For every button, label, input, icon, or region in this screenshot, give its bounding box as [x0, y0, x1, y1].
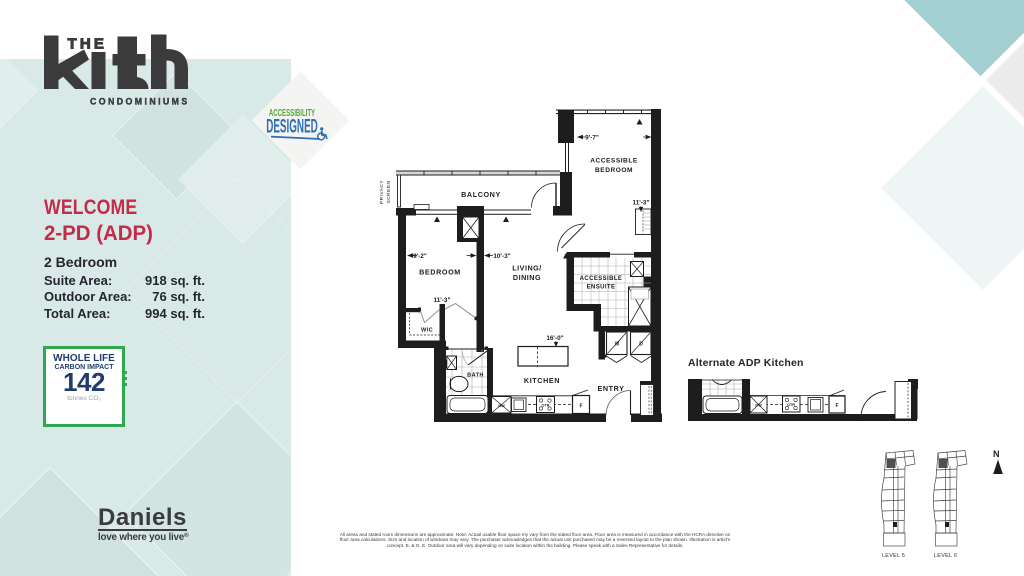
svg-text:ENSUITE: ENSUITE [587, 285, 616, 291]
svg-text:9'-2": 9'-2" [413, 253, 427, 260]
svg-text:PRIVACY: PRIVACY [379, 180, 385, 205]
svg-text:9'-7": 9'-7" [585, 135, 599, 142]
svg-text:BATH: BATH [467, 373, 484, 379]
svg-text:LEVEL 6: LEVEL 6 [934, 553, 957, 559]
svg-text:KITCHEN: KITCHEN [524, 376, 560, 385]
svg-text:N: N [993, 449, 1000, 459]
svg-text:LEVEL 5: LEVEL 5 [882, 553, 905, 559]
svg-text:11'-3": 11'-3" [633, 200, 650, 207]
svg-text:BEDROOM: BEDROOM [419, 268, 461, 277]
svg-text:10'-3": 10'-3" [493, 253, 510, 260]
svg-text:11'-3": 11'-3" [434, 297, 451, 304]
svg-text:F: F [579, 404, 582, 410]
svg-text:W: W [615, 342, 620, 348]
svg-text:WIC: WIC [421, 328, 433, 334]
svg-text:ACCESSIBLE: ACCESSIBLE [580, 276, 623, 282]
svg-text:BEDROOM: BEDROOM [595, 167, 633, 174]
svg-text:DW: DW [498, 404, 505, 408]
svg-text:SCREEN: SCREEN [386, 180, 392, 203]
svg-text:CONDOMINIUMS: CONDOMINIUMS [90, 97, 190, 107]
svg-text:ENTRY: ENTRY [597, 384, 624, 393]
svg-text:THE: THE [68, 36, 108, 53]
svg-text:LIVING/: LIVING/ [512, 264, 541, 273]
svg-text:OTR: OTR [787, 403, 795, 407]
svg-text:F: F [835, 403, 838, 409]
svg-text:BALCONY: BALCONY [461, 190, 501, 199]
svg-text:D: D [639, 342, 643, 348]
svg-text:DINING: DINING [513, 273, 541, 282]
svg-text:OTR: OTR [541, 404, 549, 408]
svg-text:DW: DW [755, 404, 762, 408]
svg-text:Alternate ADP Kitchen: Alternate ADP Kitchen [688, 357, 804, 369]
svg-text:ACCESSIBLE: ACCESSIBLE [590, 158, 638, 165]
svg-text:DESIGNED: DESIGNED [266, 116, 318, 137]
svg-text:16'-0": 16'-0" [546, 335, 563, 342]
